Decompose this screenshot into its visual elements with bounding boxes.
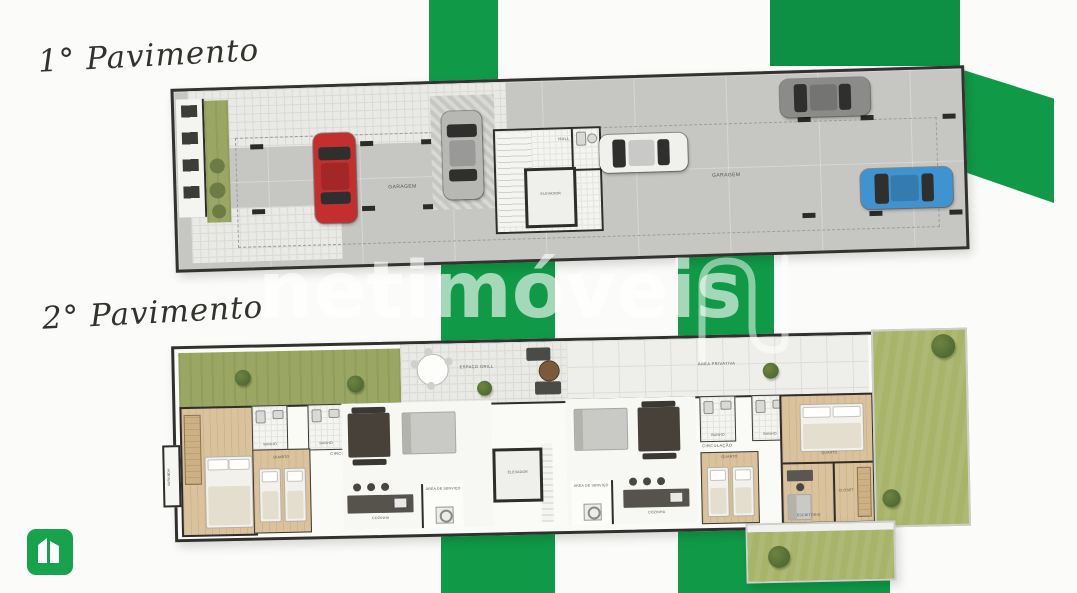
stall-tick (869, 211, 882, 216)
grill-terrace: ESPAÇO GRILL (400, 341, 567, 406)
stall-tick (802, 213, 815, 218)
bedroom-2-right: QUARTO (700, 451, 759, 524)
closet: CLOSET (833, 461, 874, 522)
utility-room (176, 99, 207, 218)
stall-tick (798, 117, 811, 122)
garden-strip (204, 100, 232, 223)
banho-label: BANHO (701, 434, 735, 439)
servico-label-right: ÁREA DE SERVIÇO (573, 484, 609, 489)
floorplan-marketing-image: 1° Pavimento 2° Pavimento (0, 0, 1077, 593)
bedroom-master-left (179, 406, 258, 538)
quarto-label: QUARTO (702, 455, 758, 460)
floor1-plan: HALL ELEVADOR GARAGEM GARAGEM (170, 65, 969, 272)
banho-label: BANHO (253, 443, 287, 448)
servico-label-left: ÁREA DE SERVIÇO (425, 487, 461, 492)
stall-tick (949, 209, 962, 214)
escritorio-label: ESCRITÓRIO (784, 514, 834, 519)
suite-wing: QUARTO ESCRITÓRIO CLOSET (779, 393, 876, 525)
green-stripe (962, 58, 1054, 203)
servico-right: ÁREA DE SERVIÇO (571, 480, 614, 525)
elevator: ELEVADOR (524, 167, 578, 229)
espaco-grill-label: ESPAÇO GRILL (437, 364, 517, 370)
bathroom-left-a: BANHO (251, 405, 288, 452)
private-terrace: ÁREA PRIVATIVA (566, 335, 869, 401)
closet-label: CLOSET (833, 489, 859, 493)
banho-label: BANHO (309, 442, 343, 447)
landscape-strip (178, 349, 401, 410)
living-left: COZINHA ÁREA DE SERVIÇO (341, 401, 494, 530)
floor2-building: ESPAÇO GRILL ÁREA PRIVATIVA VARANDA BANH… (171, 332, 881, 543)
varanda-label: VARANDA (167, 455, 172, 499)
stall-tick (362, 206, 375, 211)
white-car (599, 133, 688, 174)
quarto-master-label: QUARTO (798, 451, 860, 456)
living-right: ÁREA DE SERVIÇO COZINHA (565, 396, 698, 525)
stall-tick (252, 209, 265, 214)
bathroom-left-b: BANHO (307, 404, 344, 451)
elevator-label: ELEVADOR (528, 192, 574, 197)
bathroom-right-a: BANHO (699, 396, 736, 443)
cozinha-label-right: COZINHA (624, 510, 690, 515)
lower-lawn (745, 520, 896, 583)
green-stripe (429, 0, 498, 88)
stair-core: HALL ELEVADOR (493, 126, 604, 234)
floor1-title: 1° Pavimento (37, 32, 260, 80)
floor2-title: 2° Pavimento (41, 289, 264, 337)
servico-left: ÁREA DE SERVIÇO (421, 483, 464, 528)
elevator-label-2: ELEVADOR (496, 471, 540, 476)
wc (571, 128, 600, 171)
stall-tick (943, 114, 956, 119)
stall-tick (861, 115, 874, 120)
circulacao-label-right: CIRCULAÇÃO (682, 443, 752, 449)
stall-tick (250, 144, 263, 149)
red-car (313, 132, 358, 223)
green-stripe (770, 0, 960, 66)
bedroom-2-left: QUARTO (252, 448, 312, 533)
varanda: VARANDA (162, 445, 181, 507)
floor2-plan: ESPAÇO GRILL ÁREA PRIVATIVA VARANDA BANH… (171, 330, 967, 537)
cozinha-label-left: COZINHA (348, 516, 414, 521)
netimoveis-logo (26, 528, 74, 576)
area-privativa-label: ÁREA PRIVATIVA (667, 361, 767, 367)
elevator-core-2: ELEVADOR (492, 441, 554, 526)
escritorio: ESCRITÓRIO (783, 461, 836, 522)
gray-car (779, 77, 870, 118)
quarto-label: QUARTO (253, 455, 309, 460)
side-lawn (871, 328, 971, 528)
stall-tick (360, 141, 373, 146)
blue-car (860, 167, 953, 210)
silver-car (441, 111, 484, 200)
